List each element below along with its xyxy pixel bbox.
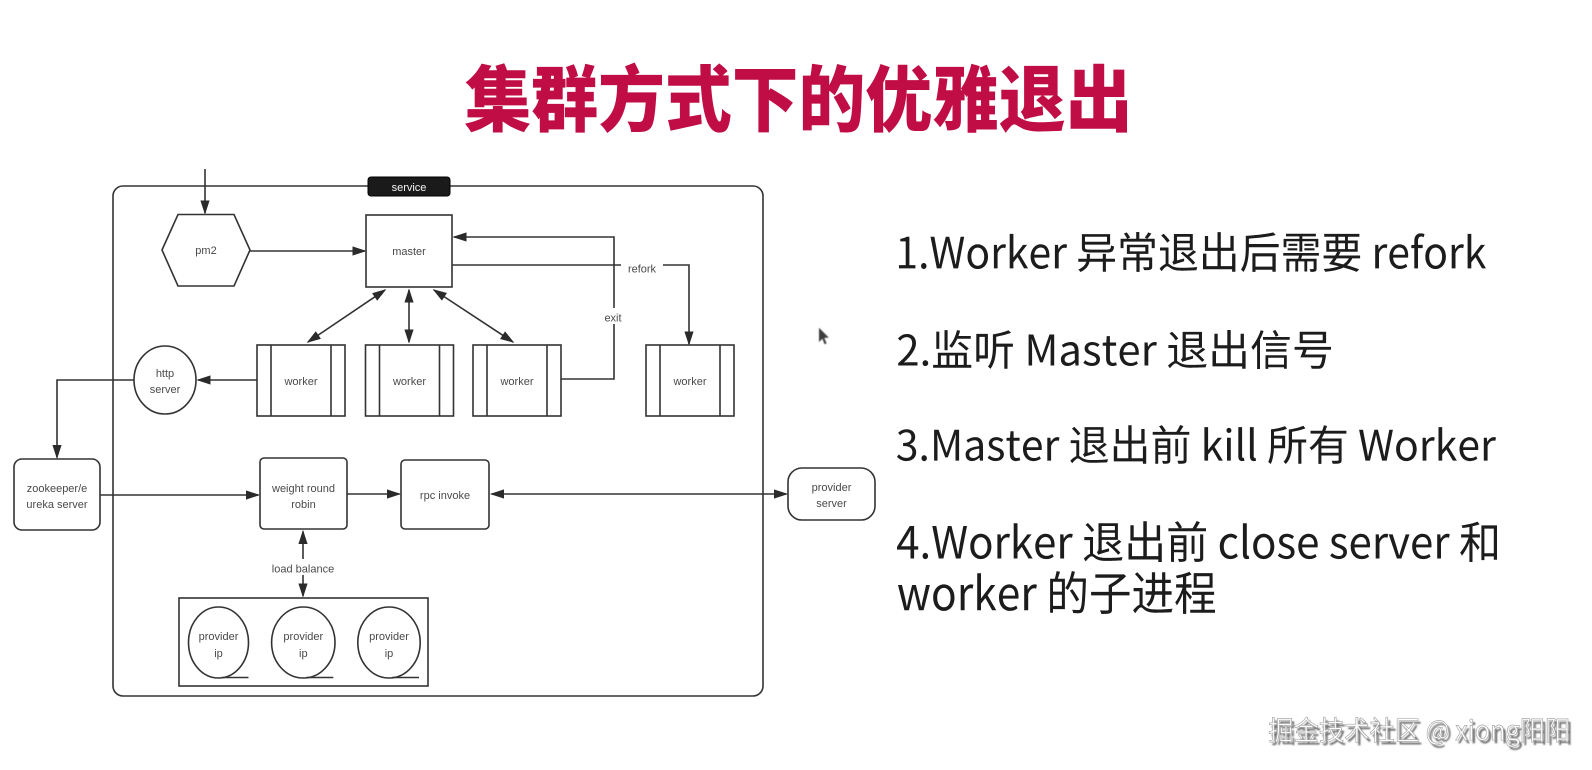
svg-text:worker: worker: [672, 376, 706, 388]
svg-text:pm2: pm2: [195, 245, 216, 257]
svg-text:robin: robin: [291, 499, 315, 511]
svg-text:zookeeper/e: zookeeper/e: [27, 483, 88, 495]
svg-text:rpc invoke: rpc invoke: [420, 490, 470, 502]
svg-text:server: server: [816, 498, 847, 510]
svg-text:service: service: [392, 182, 427, 194]
svg-text:ip: ip: [299, 648, 308, 660]
svg-text:ureka server: ureka server: [26, 499, 87, 511]
svg-text:worker: worker: [499, 376, 533, 388]
svg-text:server: server: [150, 384, 181, 396]
svg-text:http: http: [156, 368, 174, 380]
svg-text:provider: provider: [199, 631, 239, 643]
svg-text:worker: worker: [283, 376, 317, 388]
svg-text:provider: provider: [283, 631, 323, 643]
svg-text:refork: refork: [628, 264, 657, 276]
svg-text:ip: ip: [385, 648, 394, 660]
svg-text:master: master: [392, 246, 426, 258]
svg-text:worker: worker: [392, 376, 426, 388]
svg-text:weight round: weight round: [271, 483, 335, 495]
svg-text:load balance: load balance: [272, 564, 334, 576]
svg-text:provider: provider: [812, 482, 852, 494]
svg-text:provider: provider: [369, 631, 409, 643]
svg-text:exit: exit: [604, 313, 621, 325]
svg-text:ip: ip: [214, 648, 223, 660]
